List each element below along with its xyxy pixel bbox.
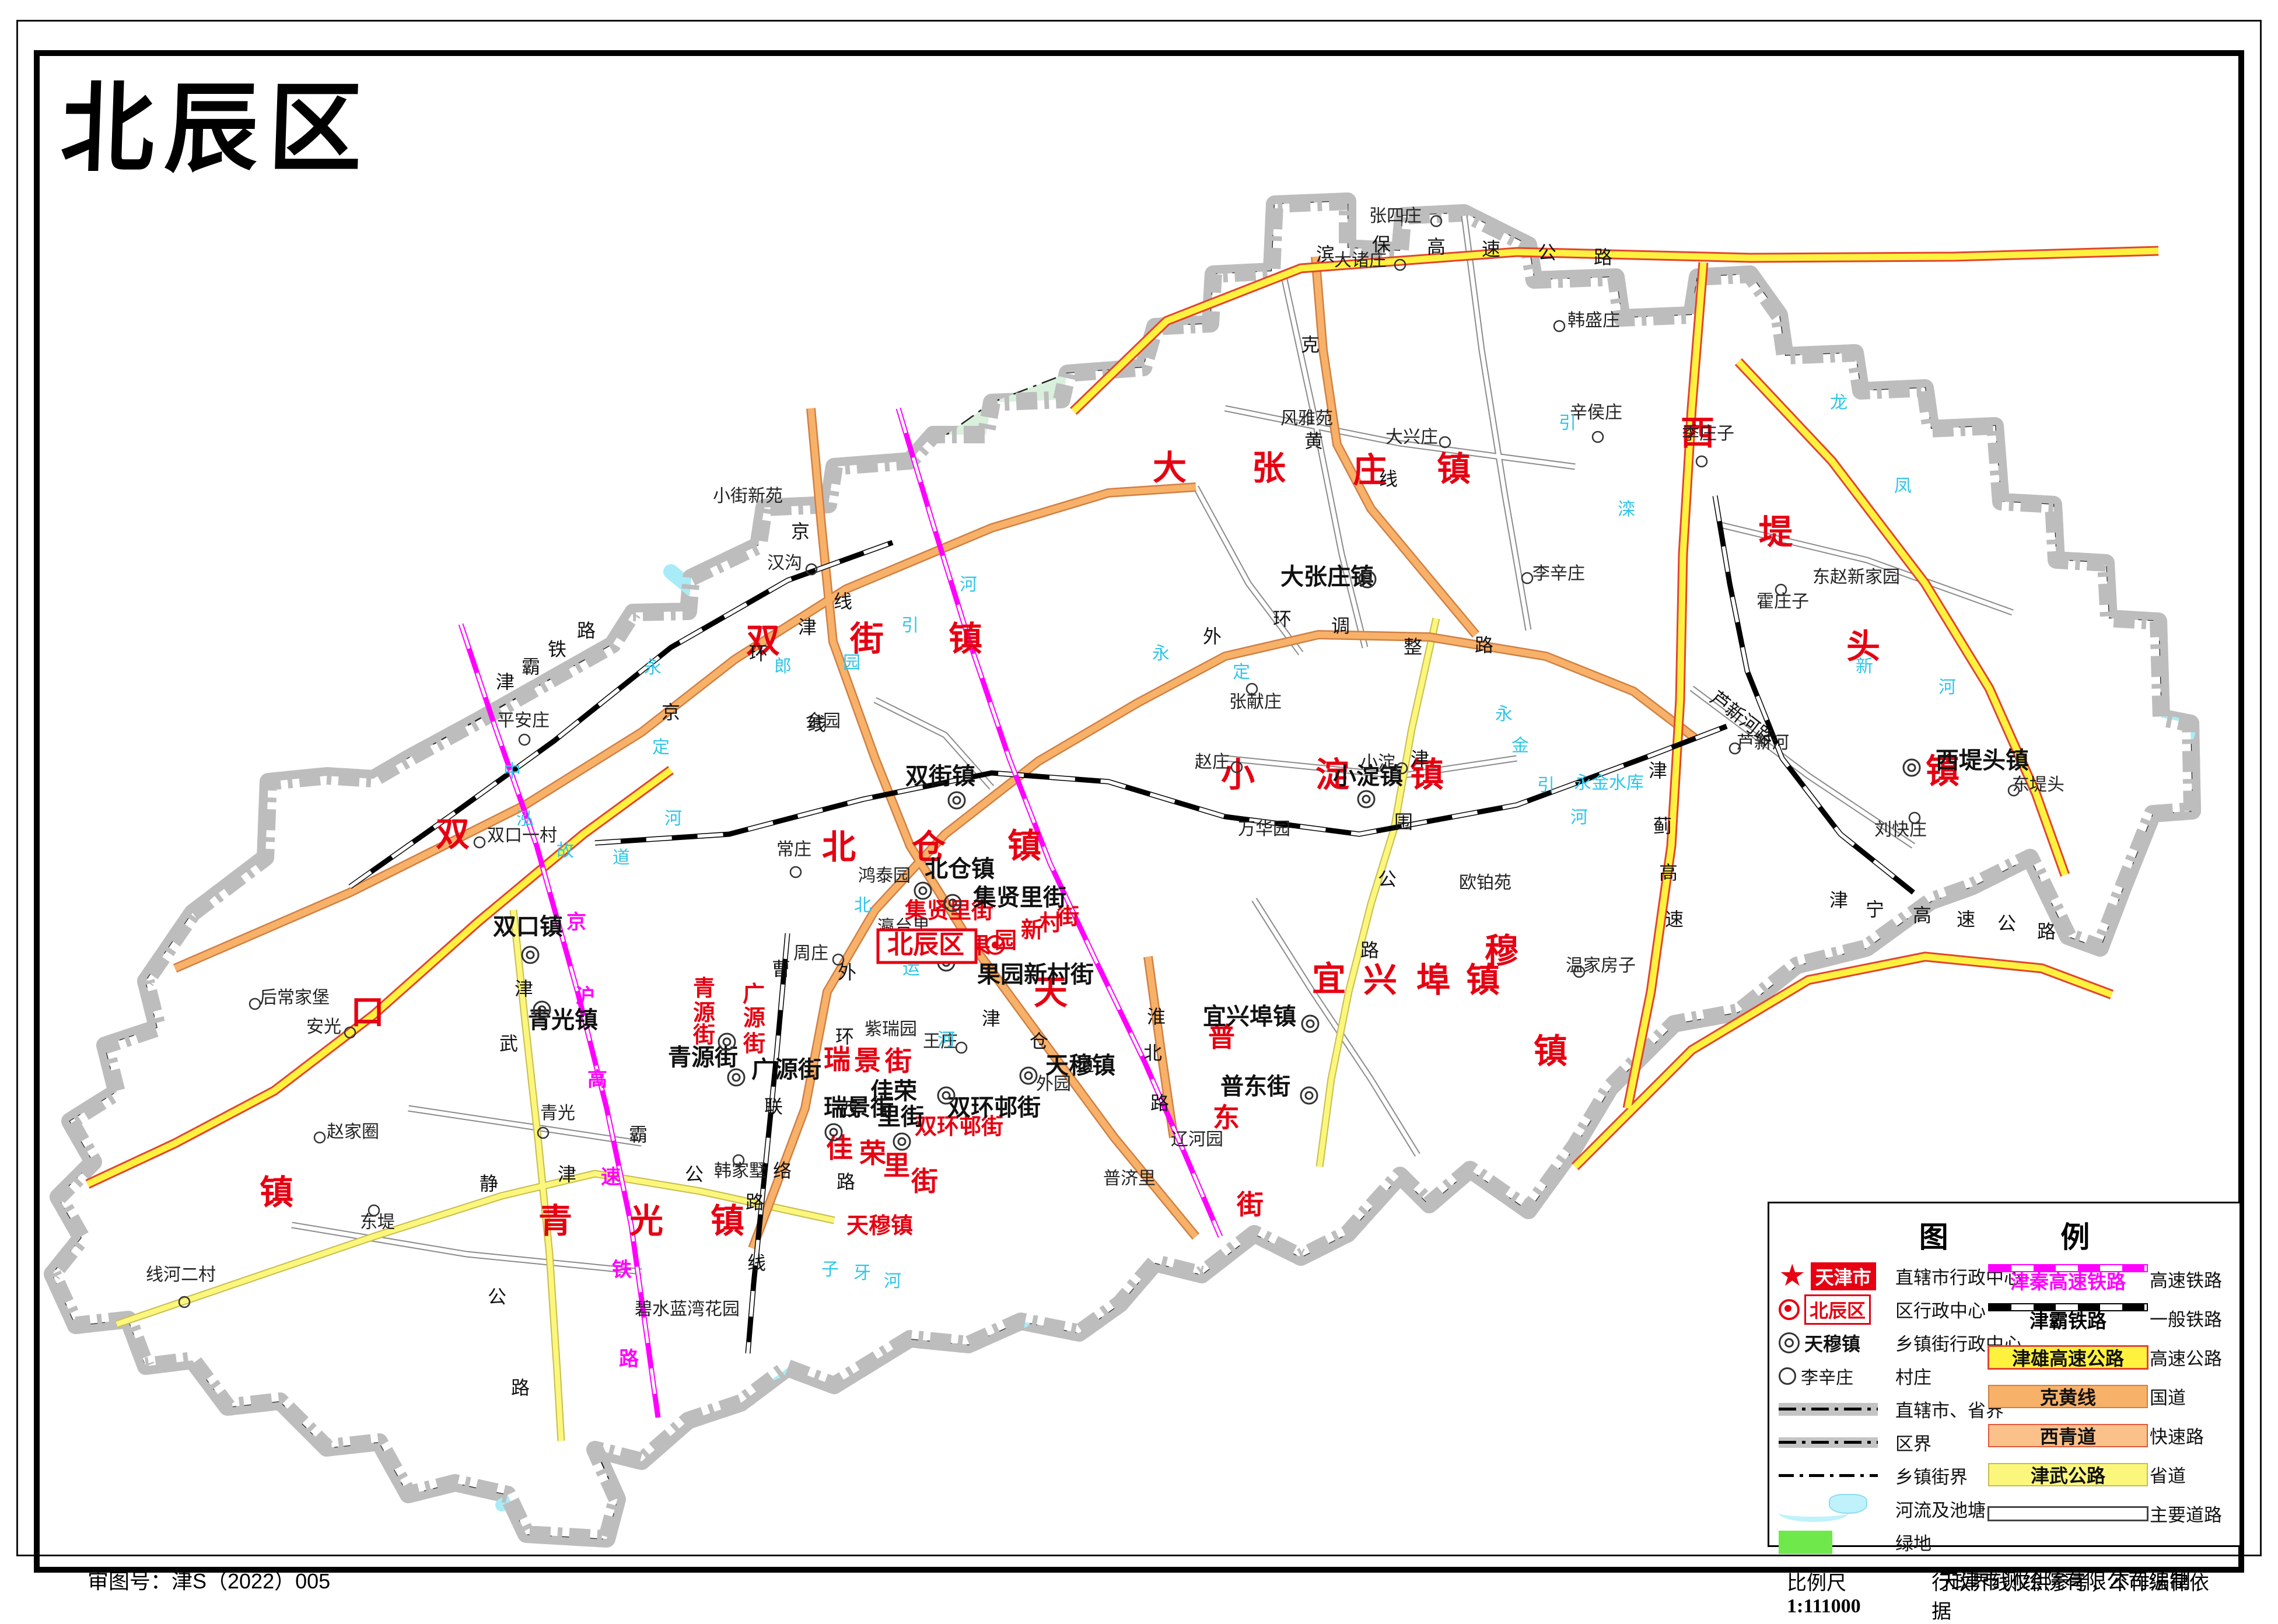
hsr-sample-name: 津秦高速铁路 [2010, 1272, 2126, 1294]
legend-title: 图 例 [1769, 1203, 2239, 1259]
province-road-sample: 津武公路 [1988, 1463, 2148, 1486]
legend-sample-name: 天穆镇 [1804, 1329, 1860, 1356]
beichen-district-map-sheet: { "title": "北辰区", "footer": {"left": "审图… [0, 0, 2278, 1605]
legend-sample-name: 北辰区 [1804, 1294, 1871, 1325]
river-sample [1779, 1494, 1878, 1524]
legend-item-乡镇街行政中心: 天穆镇乡镇街行政中心 [1779, 1326, 1986, 1359]
green-area-sample [1779, 1531, 1832, 1554]
legend-item-desc: 河流及池塘 [1895, 1496, 1986, 1522]
province-boundary-sample [1779, 1403, 1878, 1416]
legend-box: 图 例 ★天津市直辖市行政中心北辰区区行政中心天穆镇乡镇街行政中心李辛庄村庄直辖… [1768, 1202, 2241, 1547]
village-icon [1779, 1367, 1796, 1385]
legend-left-column: ★天津市直辖市行政中心北辰区区行政中心天穆镇乡镇街行政中心李辛庄村庄直辖市、省界… [1779, 1259, 1986, 1559]
legend-item-一般铁路: 津霸铁路一般铁路 [1986, 1298, 2230, 1338]
rail-line-sample [1988, 1303, 2148, 1311]
hsr-line-sample [1988, 1264, 2148, 1272]
legend-item-desc: 高速铁路 [2150, 1266, 2222, 1292]
expressway-sample: 津雄高速公路 [1987, 1345, 2148, 1370]
publisher: 天津市测绘院有限公司编制 [1938, 1564, 2190, 1595]
approval-number: 审图号：津S（2022）005 [88, 1564, 330, 1595]
legend-item-desc: 主要道路 [2150, 1500, 2222, 1527]
legend-item-省道: 津武公路省道 [1986, 1455, 2230, 1494]
legend-item-国道: 克黄线国道 [1986, 1377, 2230, 1416]
footer: 审图号：津S（2022）005 天津市测绘院有限公司编制 [0, 1567, 2278, 1602]
legend-item-desc: 区行政中心 [1895, 1296, 1986, 1322]
legend-item-desc: 高速公路 [2150, 1344, 2222, 1370]
fast-road-sample: 西青道 [1988, 1424, 2148, 1447]
town-center-icon [1779, 1332, 1800, 1353]
legend-right-column: 津秦高速铁路高速铁路津霸铁路一般铁路津雄高速公路高速公路克黄线国道西青道快速路津… [1986, 1259, 2230, 1559]
legend-item-区行政中心: 北辰区区行政中心 [1779, 1293, 1986, 1326]
legend-item-desc: 快速路 [2150, 1422, 2204, 1448]
district-boundary-sample [1779, 1437, 1878, 1448]
legend-item-desc: 省道 [2150, 1461, 2186, 1487]
legend-item-desc: 绿地 [1895, 1529, 1931, 1555]
legend-item-河流及池塘: 河流及池塘 [1779, 1492, 1986, 1525]
legend-item-desc: 区界 [1895, 1429, 1931, 1455]
legend-item-高速铁路: 津秦高速铁路高速铁路 [1986, 1259, 2230, 1298]
legend-item-desc: 国道 [2150, 1383, 2186, 1409]
legend-item-直辖市、省界: 直辖市、省界 [1779, 1392, 1986, 1426]
legend-item-desc: 一般铁路 [2150, 1305, 2222, 1331]
page-title: 北辰区 [59, 49, 375, 191]
legend-item-主要道路: 主要道路 [1986, 1494, 2230, 1533]
legend-item-desc: 村庄 [1895, 1363, 1931, 1389]
legend-sample-name: 天津市 [1811, 1262, 1876, 1290]
national-road-sample: 克黄线 [1988, 1385, 2148, 1408]
legend-item-desc: 乡镇街界 [1895, 1462, 1968, 1489]
legend-item-快速路: 西青道快速路 [1986, 1416, 2230, 1455]
legend-item-乡镇街界: 乡镇街界 [1779, 1459, 1986, 1492]
legend-item-绿地: 绿地 [1779, 1525, 1986, 1559]
legend-item-直辖市行政中心: ★天津市直辖市行政中心 [1779, 1259, 1986, 1293]
legend-sample-name: 李辛庄 [1801, 1363, 1853, 1389]
star-icon: ★ [1779, 1261, 1806, 1291]
rail-sample-name: 津霸铁路 [2029, 1311, 2106, 1333]
township-boundary-sample [1779, 1474, 1878, 1477]
district-center-icon [1779, 1299, 1800, 1320]
legend-item-村庄: 李辛庄村庄 [1779, 1359, 1986, 1392]
legend-item-高速公路: 津雄高速公路高速公路 [1986, 1338, 2230, 1377]
legend-item-区界: 区界 [1779, 1426, 1986, 1459]
major-road-sample [1987, 1506, 2148, 1521]
